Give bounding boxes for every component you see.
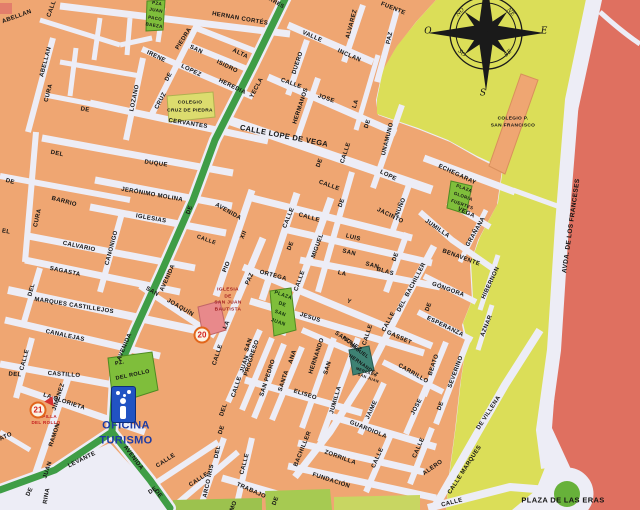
iglesia-san-juan-label: BAUTISTA [215, 308, 242, 313]
street-label: LA [352, 99, 360, 109]
street-label: TRABAJO [235, 482, 266, 500]
compass-letter: NE [505, 8, 515, 18]
street-label: AZNAR [480, 314, 494, 337]
street-label: HERNAN CORTÉS [211, 11, 268, 27]
street-label: FUNDACIÓN [311, 472, 350, 490]
pza-juan-paco-baeza-label: PACO [148, 15, 163, 22]
colegio-cruz-de-piedra-label: CRUZ DE PIEDRA [167, 110, 213, 115]
street-label: LUIS [345, 233, 361, 242]
plaza-san-juan-label: PLAZA [273, 291, 292, 302]
street-label: DE [272, 496, 281, 507]
street-label: CALLE [412, 437, 426, 459]
street-label: ALVAREZ [345, 9, 359, 39]
street-label: HEREDIA [217, 78, 246, 96]
street-label: JUMILLA [329, 385, 343, 414]
street-label: SAN [189, 44, 204, 55]
street-label: ARES [267, 0, 284, 11]
street-label: CALLE [196, 235, 217, 247]
street-label: CASTILLO [47, 371, 80, 379]
street-label: ESPERANZA [426, 316, 465, 339]
street-label: AVENIDA [159, 264, 176, 293]
street-label: LA [337, 270, 347, 278]
street-label: ABELLAN [1, 9, 32, 25]
compass-letter: E [541, 28, 548, 37]
street-label: BACHILLER [404, 262, 427, 298]
street-label: GÓNGORA [431, 281, 465, 298]
street-label: CURA [44, 83, 55, 103]
street-label: CANALEJAS [45, 329, 85, 343]
street-label: JUAN [42, 461, 53, 480]
street-label: DEL [219, 403, 229, 417]
street-label: SAN PEDRO [259, 359, 277, 398]
poi-badge-21: 21 [30, 402, 47, 419]
street-label: AVENIDA [122, 445, 144, 472]
street-label: CURA [33, 208, 43, 228]
street-label: LA [222, 320, 231, 330]
street-label: DE [80, 106, 90, 113]
street-label: HERMANOS [292, 87, 309, 125]
street-label: GRAÑANA [465, 216, 487, 248]
street-label: CALLE [280, 77, 302, 90]
street-label: DUERO [292, 51, 305, 75]
street-label: CALLE MARQUES [447, 445, 483, 496]
street-label: CALLE [212, 344, 224, 367]
street-label: BACHILLER [293, 430, 313, 467]
iglesia-san-juan-label: IGLESIA [217, 289, 239, 294]
street-label: LOPEZ [180, 64, 202, 79]
street-label: RAMON [48, 422, 61, 447]
street-label: EL [1, 228, 10, 235]
street-label: SEVERINO [447, 355, 464, 389]
street-label: JOAQUÍN [166, 298, 195, 318]
street-label: CALL [46, 0, 58, 18]
street-label: JERÓNIMO MOLINA [121, 187, 184, 204]
street-label: JOSE [410, 398, 423, 416]
street-label: CANONIGO [104, 230, 119, 266]
street-label: DEL [8, 372, 21, 379]
street-label: AVDA. DE LOS FRANCESES [562, 178, 582, 273]
street-label: CALLE [19, 349, 30, 372]
street-label: SANTA [278, 370, 290, 393]
street-label: MO [229, 500, 238, 510]
street-label: PIO [222, 261, 232, 274]
compass-letter: NO [456, 8, 466, 18]
plaza-san-juan-label: JUAN [270, 318, 286, 328]
compass-letter: SO [456, 49, 466, 59]
street-label: INCLAN [336, 48, 361, 64]
street-label: DE [5, 178, 15, 186]
street-label: JESUS [299, 312, 321, 324]
tourist-office-label: TURISMO [99, 436, 152, 447]
street-label: BEATO [428, 354, 441, 377]
street-label: HIBERNON [481, 266, 501, 300]
street-label: CALLE [371, 447, 385, 469]
street-label: CALLE [293, 270, 306, 292]
street-label: CALLE [155, 453, 177, 470]
colegio-san-francisco-label: SAN FRANCISCO [491, 125, 536, 130]
street-label: CERVANTES [168, 118, 208, 130]
poi-badge-20: 20 [194, 327, 211, 344]
street-label: Y [346, 298, 352, 305]
street-label: ELISEO [293, 388, 318, 401]
street-label: LEVANTE [67, 451, 97, 470]
pza-juan-paco-baeza-label: PZA [152, 1, 163, 7]
pz-del-rollo-label: PZ. [115, 360, 126, 367]
street-label: RINA [43, 488, 52, 505]
street-label: DEL [396, 299, 407, 313]
street-label: LOPE [379, 169, 398, 182]
street-label: PAZ [386, 31, 394, 45]
street-label: SAN [323, 361, 333, 376]
street-label: MARQUES CASTILLEJOS [34, 297, 114, 315]
colegio-cruz-de-piedra-label: COLEGIO [178, 102, 203, 107]
street-label: IGLESIAS [135, 213, 166, 224]
street-label: GUARDIOLA [349, 420, 388, 440]
street-label: NUÑO [395, 197, 408, 217]
street-label: UNAMUNO [381, 122, 395, 156]
street-label: IRENE [146, 50, 167, 64]
street-label: DE [218, 425, 227, 435]
street-label: DE [364, 119, 373, 129]
street-label: CALLE [441, 497, 464, 508]
compass-letter: SE [504, 49, 513, 58]
street-label: DE [316, 158, 325, 169]
pz-del-rollo-label: DEL ROLLO [115, 370, 150, 383]
street-label: CALLE [340, 142, 352, 165]
street-label: DE [425, 302, 434, 313]
street-label: ALERO [422, 459, 444, 477]
street-label: ALTA [231, 48, 248, 61]
street-label: SAN [145, 286, 160, 298]
street-label: VALLE [301, 30, 323, 44]
pza-juan-paco-baeza-label: JUAN [149, 8, 163, 15]
street-label: JUMILLA [424, 218, 451, 239]
street-label: BLAS [376, 267, 395, 278]
street-label: CALVARIO [62, 241, 96, 254]
street-label: JAIME [365, 400, 379, 421]
street-label: CALLE [318, 179, 340, 192]
street-label: BENAVENTE [441, 248, 480, 267]
street-label: DE VILLENA [476, 395, 502, 431]
street-label: JOSE [317, 93, 335, 105]
plaza-de-las-eras-label: PLAZA DE LAS ERAS [521, 496, 604, 504]
street-label: DE [25, 487, 34, 498]
street-label: BARRIO [51, 196, 77, 208]
city-map: ABELLANCALLABELLANCURACURADEELBARRIOLOZA… [0, 0, 640, 510]
street-label: SAN [342, 248, 357, 257]
street-label: MIGUEL [311, 233, 325, 259]
plaza-san-juan-label: DE [278, 301, 287, 308]
street-label: DE [287, 241, 296, 252]
street-label: YECLA [249, 77, 265, 99]
street-label: SAGASTA [49, 266, 81, 278]
street-label: CALLE LOPE DE VEGA [239, 124, 328, 148]
street-label: DEL [50, 150, 64, 159]
street-label: ANA [288, 349, 298, 364]
street-label: DE [186, 205, 195, 216]
street-label: LOZANO [129, 84, 141, 112]
street-label: DUQUE [144, 159, 168, 168]
colegio-san-francisco-label: COLEGIO P. [498, 118, 529, 123]
street-label: DE [164, 72, 174, 83]
street-label: XII [240, 230, 249, 240]
street-label: CRUZ [154, 92, 168, 111]
street-label: AVENIDA [214, 202, 242, 222]
capilla-del-rollo-label: DEL ROLLO [31, 421, 60, 426]
street-label: DEL [214, 445, 223, 459]
compass-letter: S [480, 90, 486, 99]
street-label: ABELLAN [39, 46, 53, 78]
street-label: CARRILLO [397, 363, 429, 385]
street-label: CALLE [282, 207, 296, 229]
street-label: ARCO IRIS [203, 464, 216, 499]
street-label: AVENIDA [117, 332, 134, 361]
labels-layer: ABELLANCALLABELLANCURACURADEELBARRIOLOZA… [0, 0, 640, 510]
tourist-info-icon [111, 386, 136, 423]
street-label: GASSET [386, 330, 413, 346]
street-label: FUENTE [380, 1, 406, 16]
street-label: DE [338, 198, 347, 209]
iglesia-san-juan-label: DE [224, 295, 231, 300]
plaza-san-juan-label: SAN [274, 310, 287, 319]
street-label: DE [437, 401, 446, 412]
iglesia-san-juan-label: SAN JUAN [214, 302, 241, 307]
street-label: ATO [0, 431, 13, 442]
street-label: PAZ [245, 272, 256, 286]
street-label: ZORRILLA [323, 450, 356, 467]
compass-letter: O [424, 28, 431, 37]
pza-juan-paco-baeza-label: BAEZA [145, 22, 163, 29]
street-label: ORTEGA [259, 270, 287, 283]
street-label: ISIDRO [215, 59, 238, 74]
street-label: CALLE [298, 212, 321, 224]
street-label: CALLE [362, 324, 374, 347]
street-label: HERNANDO [308, 337, 325, 374]
street-label: CALLE [231, 376, 243, 399]
street-label: DE [392, 252, 401, 263]
street-label: DEL [27, 283, 36, 297]
street-label: CALLE [239, 453, 250, 476]
